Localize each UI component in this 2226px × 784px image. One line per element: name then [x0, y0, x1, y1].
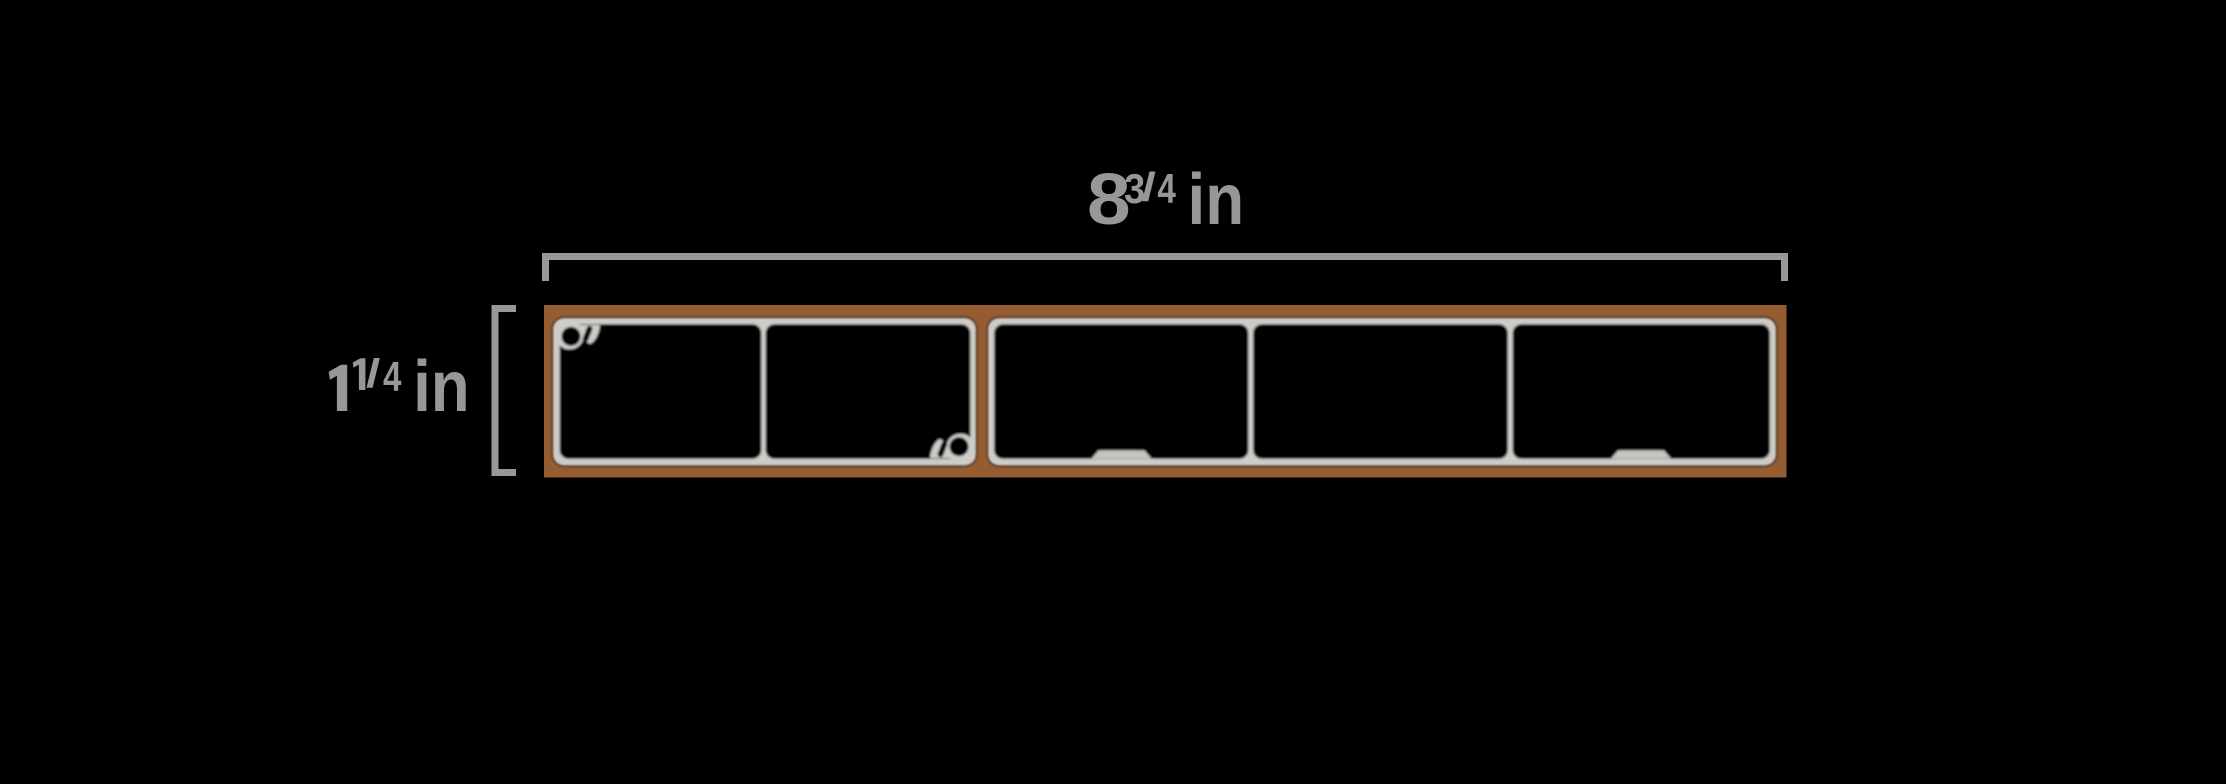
svg-text:in: in [413, 346, 470, 426]
svg-text:4: 4 [1157, 166, 1175, 213]
svg-text:/: / [1142, 164, 1157, 209]
svg-text:/: / [366, 351, 381, 396]
svg-text:4: 4 [383, 354, 401, 401]
svg-text:in: in [1188, 159, 1245, 239]
